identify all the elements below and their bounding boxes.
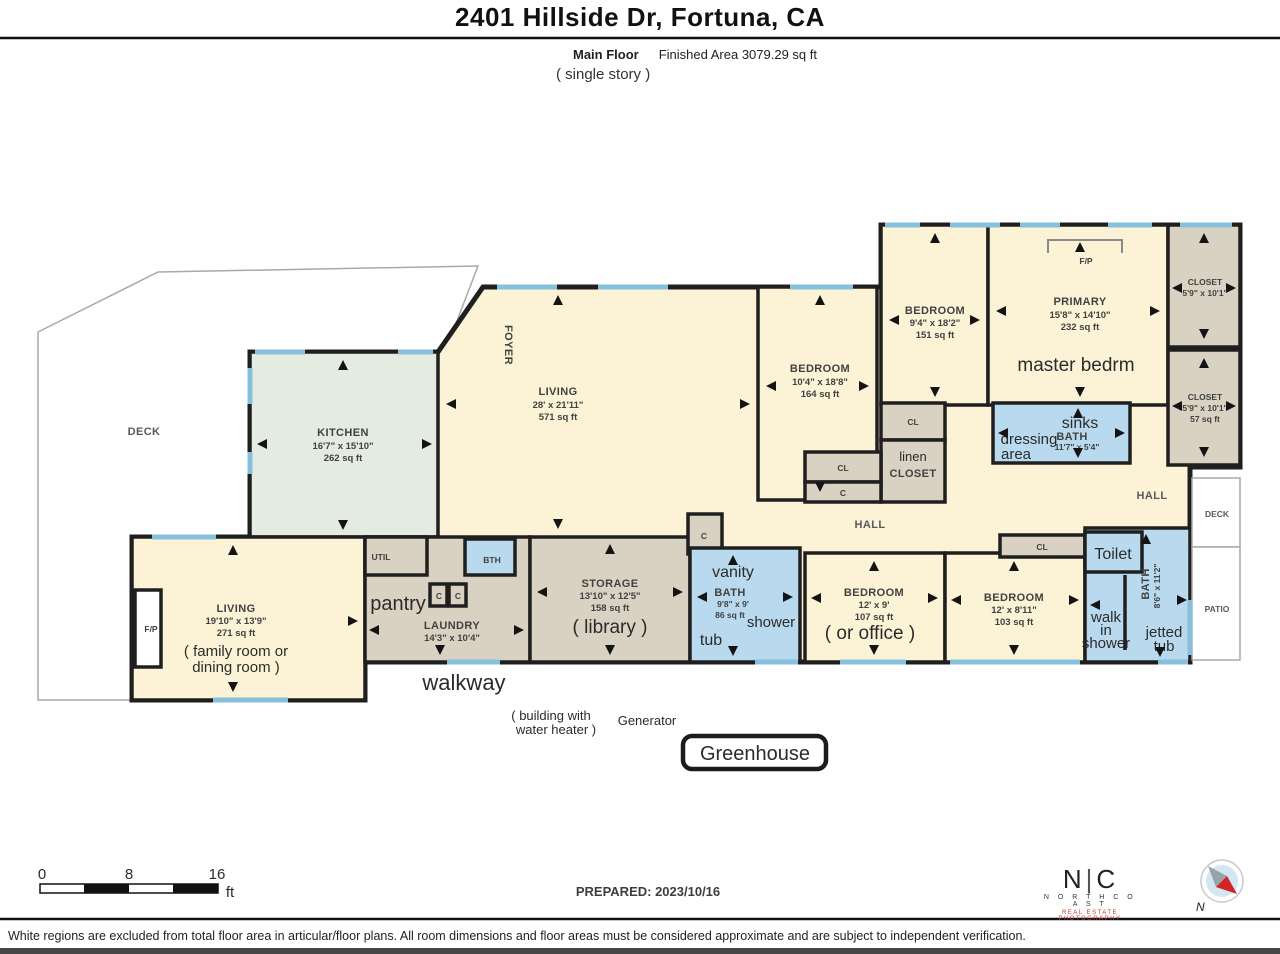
linen-label-2: CLOSET [889,468,936,480]
closet-tr-name: CLOSET [1188,277,1223,287]
logo-monogram: N|C [1040,866,1140,892]
bedroom-164-name: BEDROOM [790,363,850,375]
storage-dims: 13'10" x 12'5" [579,591,640,602]
foyer-label: FOYER [502,325,514,365]
patio-label: PATIO [1205,604,1230,614]
bath-right-name: BATH [1140,568,1152,599]
room-family-living: F/P LIVING 19'10" x 13'9" 271 sq ft ( fa… [132,537,365,700]
closet-r2-name: CLOSET [1188,392,1223,402]
primary-dims: 15'8" x 14'10" [1049,310,1110,321]
or-office-annotation: ( or office ) [825,623,915,644]
bedroom-151-name: BEDROOM [905,305,965,317]
bath-86-name: BATH [714,587,745,599]
deck-right-label: DECK [1205,509,1230,519]
family-fp-label: F/P [144,624,158,634]
closet-tr-dims: 5'9" x 10'1" [1182,288,1227,298]
room-bath-right: Toilet BATH 8'6" x 11'2" walk in shower … [1082,528,1190,662]
room-kitchen: KITCHEN 16'7" x 15'10" 262 sq ft [250,352,438,537]
family-name: LIVING [216,603,255,615]
cl-c-label: CL [1036,542,1047,552]
bedroom-151-dims: 9'4" x 18'2" [910,318,961,329]
laundry-dims: 14'3" x 10'4" [424,633,480,644]
deck-left-label: DECK [128,426,161,438]
disclaimer-text: White regions are excluded from total fl… [8,929,1272,943]
walkway-annotation: walkway [421,670,505,695]
cl-b-label: CL [837,463,848,473]
c1-label: C [436,591,442,601]
walk-in-shower-annotation-3: shower [1082,635,1130,652]
tub-annotation: tub [700,632,722,649]
vanity-annotation: vanity [712,564,754,581]
greenhouse-callout: Greenhouse [683,736,826,769]
family-area: 271 sq ft [217,628,256,639]
bedroom-103-name: BEDROOM [984,592,1044,604]
room-bedroom-151: BEDROOM 9'4" x 18'2" 151 sq ft [881,225,988,405]
building-annotation-1: ( building with [511,708,591,723]
photographer-logo: N|C N O R T H C O A S T REAL ESTATE PHOT… [1040,866,1140,922]
family-annotation-1: ( family room or [184,643,288,660]
pantry-annotation: pantry [370,593,426,615]
closet-r2-area: 57 sq ft [1190,414,1220,424]
hall-right-label: HALL [1137,490,1168,502]
family-dims: 19'10" x 13'9" [205,616,266,627]
bedroom-164-area: 164 sq ft [801,389,840,400]
living-name: LIVING [538,386,577,398]
storage-area: 158 sq ft [591,603,630,614]
kitchen-dims: 16'7" x 15'10" [312,441,373,452]
closet-cl-c: CL [1000,535,1085,557]
primary-annotation: master bedrm [1017,355,1134,376]
c-a-label: C [840,488,846,498]
primary-fp-label: F/P [1079,256,1093,266]
scale-tick-8: 8 [125,866,133,883]
primary-name: PRIMARY [1053,296,1106,308]
jetted-tub-annotation-2: tub [1154,638,1175,655]
room-storage: STORAGE 13'10" x 12'5" 158 sq ft ( libra… [530,537,690,662]
storage-name: STORAGE [582,578,639,590]
bedroom-107-area: 107 sq ft [855,612,894,623]
laundry-name: LAUNDRY [424,620,480,632]
toilet-annotation: Toilet [1094,546,1132,563]
dressing-area-annotation-2: area [1001,446,1032,463]
greenhouse-label: Greenhouse [700,743,810,765]
logo-line-2: REAL ESTATE PHOTOGRAPHY [1040,910,1140,922]
generator-annotation: Generator [618,713,677,728]
building-annotation-2: water heater ) [515,722,596,737]
bedroom-107-name: BEDROOM [844,587,904,599]
logo-line-1: N O R T H C O A S T [1040,894,1140,908]
compass-north-label: N [1196,900,1205,914]
living-dims: 28' x 21'11" [533,400,584,411]
room-primary-bath: sinks BATH 11'7" x 5'4" dressing area [993,403,1130,463]
room-laundry: UTIL BTH pantry C C LAUNDRY 14'3" x 10'4… [365,537,530,662]
room-patio: PATIO [1192,547,1240,660]
hall-center-label: HALL [855,519,886,531]
bath-86-dims: 9'8" x 9' [717,599,749,609]
kitchen-name: KITCHEN [317,427,369,439]
bath-right-dims: 8'6" x 11'2" [1152,564,1162,609]
room-bath-86: vanity BATH 9'8" x 9' 86 sq ft shower tu… [690,548,800,662]
bottom-edge-bar [0,948,1280,954]
scale-tick-16: 16 [209,866,226,883]
bath-86-area: 86 sq ft [715,610,745,620]
bedroom-151-area: 151 sq ft [916,330,955,341]
library-annotation: ( library ) [573,617,648,638]
c-small-label: C [701,531,707,541]
scale-tick-0: 0 [38,866,46,883]
bedroom-103-area: 103 sq ft [995,617,1034,628]
kitchen-area: 262 sq ft [324,453,363,464]
bedroom-103-dims: 12' x 8'11" [991,605,1036,616]
bedroom-164-dims: 10'4" x 18'8" [792,377,848,388]
shower-annotation: shower [747,614,795,631]
bedroom-107-dims: 12' x 9' [859,600,890,611]
closet-r2-dims: 5'9" x 10'1" [1182,403,1227,413]
c2-label: C [455,591,461,601]
living-area: 571 sq ft [539,412,578,423]
floor-plan-canvas: DECK KITCHEN 16'7" x 15'10" 262 sq ft LI… [0,0,1280,954]
linen-label-1: linen [899,449,926,464]
primary-area: 232 sq ft [1061,322,1100,333]
cl-a-label: CL [907,417,918,427]
room-deck-right: DECK [1192,478,1240,547]
bth-label: BTH [483,555,500,565]
util-label: UTIL [372,552,391,562]
family-annotation-2: dining room ) [192,659,280,676]
